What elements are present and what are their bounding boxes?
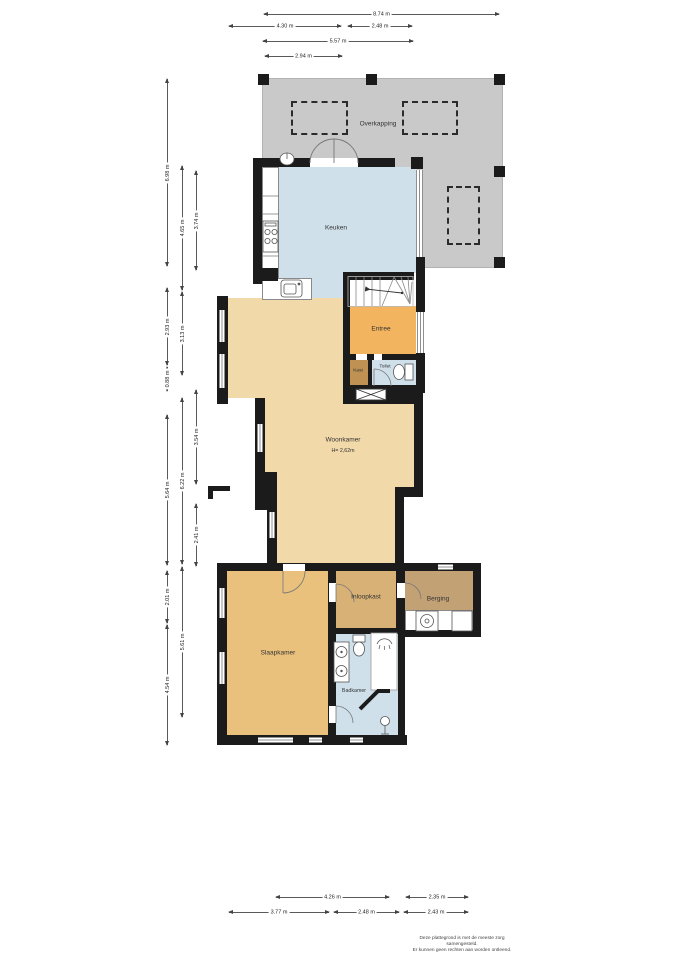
doorway-badkamer	[329, 706, 336, 723]
dim-left-4: 2.01 m	[164, 570, 171, 624]
dim-left-8: 6.22 m	[179, 397, 186, 565]
window-slaapkamer-2	[219, 652, 225, 684]
label-berging: Berging	[427, 596, 449, 603]
wall-right-woonkamer-low	[395, 497, 404, 566]
window-bay-1	[219, 310, 225, 342]
label-kast: Kast	[353, 369, 363, 374]
doorway-berging	[397, 583, 405, 598]
dim-left-9: 5.61 m	[179, 566, 186, 718]
label-entree: Entree	[371, 326, 390, 333]
wall-berging-right	[473, 563, 481, 637]
wall-berging-bottom	[398, 630, 481, 637]
wall-kitchen-corner	[253, 268, 278, 281]
window-entree-right	[417, 312, 424, 353]
label-woonkamer-height: H= 2,62m	[331, 448, 354, 454]
window-bottom-1	[258, 737, 293, 743]
dim-bottom-2: 3.77 m	[228, 909, 330, 916]
dim-left-2: 0.88 m	[164, 366, 171, 392]
wall-niche-block	[350, 385, 423, 404]
dim-bottom-4: 2.43 m	[403, 909, 469, 916]
disclaimer: Deze plattegrond is met de meeste zorg s…	[404, 936, 520, 954]
canopy-opening-1	[291, 101, 348, 135]
berging-appliance-strip	[405, 610, 473, 632]
wall-stairs-top	[343, 272, 414, 280]
window-bottom-3	[350, 737, 363, 743]
canopy-opening-3	[447, 186, 480, 245]
label-toilet: Toilet	[379, 365, 390, 370]
disclaimer-line-1: Deze plattegrond is met de meeste zorg s…	[404, 936, 520, 948]
label-slaapkamer: Slaapkamer	[261, 650, 296, 657]
wall-badkamer-right	[398, 628, 405, 738]
wall-stairs-left	[343, 276, 350, 404]
disclaimer-line-2: Er kunnen geen rechten aan worden ontlee…	[404, 948, 520, 954]
dim-left-5: 4.54 m	[164, 624, 171, 746]
dim-bottom-1: 2.35 m	[405, 894, 469, 901]
room-woonkamer-c	[277, 487, 395, 563]
wall-kitchen-top-2	[358, 158, 395, 167]
label-overkapping: Overkapping	[360, 121, 397, 128]
label-keuken: Keuken	[325, 225, 347, 232]
label-inloopkast: Inloopkast	[351, 594, 381, 601]
room-badkamer	[336, 634, 398, 735]
canopy-opening-2	[402, 101, 458, 135]
dim-bottom-0: 4.26 m	[275, 894, 390, 901]
kitchen-counter-bottom	[262, 278, 312, 300]
window-bay-2	[219, 354, 225, 388]
terrace-mark-v	[208, 486, 213, 499]
dim-top-0: 8.74 m	[263, 11, 500, 18]
room-woonkamer-a	[228, 298, 344, 398]
label-badkamer: Badkamer	[342, 688, 366, 694]
dim-top-4: 2.94 m	[264, 53, 343, 60]
kitchen-counter-left	[262, 167, 279, 284]
wall-badkamer-top	[330, 628, 400, 634]
wall-right-upper	[416, 257, 425, 312]
floorplan-page: Overkapping Keuken Entree Kast Toilet Wo…	[0, 0, 679, 960]
room-berging	[405, 570, 473, 610]
dim-left-3: 5.64 m	[164, 414, 171, 566]
wall-kitchen-post	[411, 157, 423, 169]
dim-left-11: 3.54 m	[193, 389, 200, 485]
doorway-kitchen-canopy	[310, 158, 358, 167]
doorway-inloopkast	[329, 583, 336, 602]
window-woonkamer-1	[257, 424, 263, 452]
dim-top-1: 4.30 m	[228, 23, 342, 30]
wall-right-woonkamer	[414, 404, 423, 490]
wall-kast-toilet	[368, 358, 372, 386]
window-slaapkamer-1	[219, 588, 225, 618]
window-bottom-2	[309, 737, 322, 743]
stairwell	[348, 276, 414, 307]
wall-kitchen-left	[253, 158, 262, 284]
dim-left-1: 2.93 m	[164, 287, 171, 366]
window-kitchen-glasswall	[416, 170, 423, 257]
doorway-kast	[356, 354, 367, 360]
doorway-toilet	[374, 354, 382, 360]
room-toilet	[372, 358, 416, 385]
canopy-post-4	[494, 166, 505, 177]
canopy-post-1	[258, 74, 269, 85]
dim-bottom-3: 2.48 m	[333, 909, 400, 916]
dim-left-7: 3.13 m	[179, 291, 186, 376]
dim-left-0: 6.98 m	[164, 78, 171, 267]
canopy-post-5	[494, 257, 505, 268]
wall-right-step	[395, 487, 423, 497]
doorway-slaapkamer	[283, 564, 305, 571]
room-keuken	[262, 167, 417, 273]
canopy-post-3	[494, 74, 505, 85]
label-woonkamer: Woonkamer	[326, 437, 361, 444]
dim-left-10: 3.74 m	[193, 170, 200, 271]
window-woonkamer-2	[269, 512, 275, 538]
dim-top-2: 2.48 m	[347, 23, 413, 30]
dim-left-12: 2.41 m	[193, 503, 200, 567]
window-berging-top	[438, 564, 453, 570]
canopy-post-2	[366, 74, 377, 85]
dim-left-6: 4.65 m	[179, 165, 186, 291]
wall-woonkamer-left-block	[255, 472, 277, 510]
wall-kitchen-top-1	[253, 158, 310, 167]
dim-top-3: 5.57 m	[262, 38, 414, 45]
